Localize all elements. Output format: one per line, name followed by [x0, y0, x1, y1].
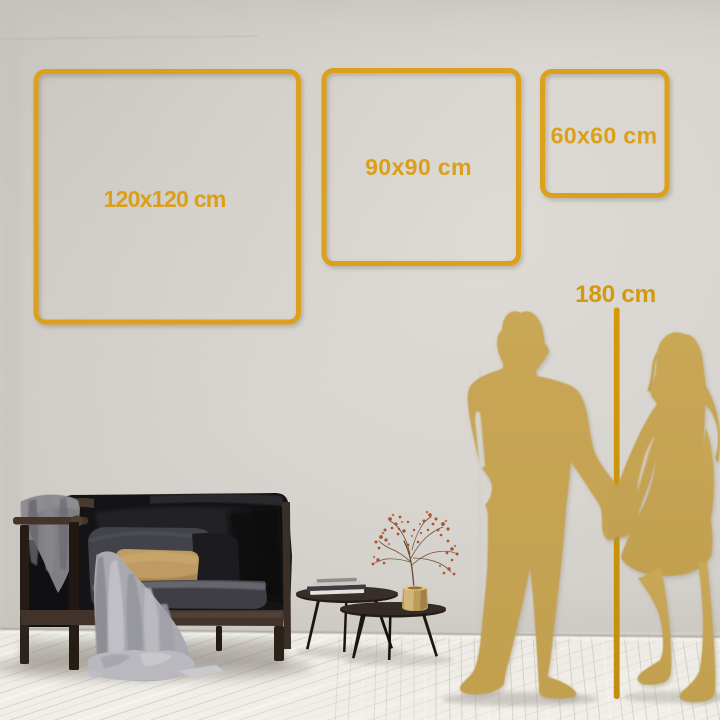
- svg-text:180 cm: 180 cm: [575, 281, 656, 308]
- svg-text:90x90 cm: 90x90 cm: [365, 154, 472, 180]
- svg-text:60x60 cm: 60x60 cm: [551, 123, 658, 149]
- svg-text:120x120 cm: 120x120 cm: [103, 186, 225, 212]
